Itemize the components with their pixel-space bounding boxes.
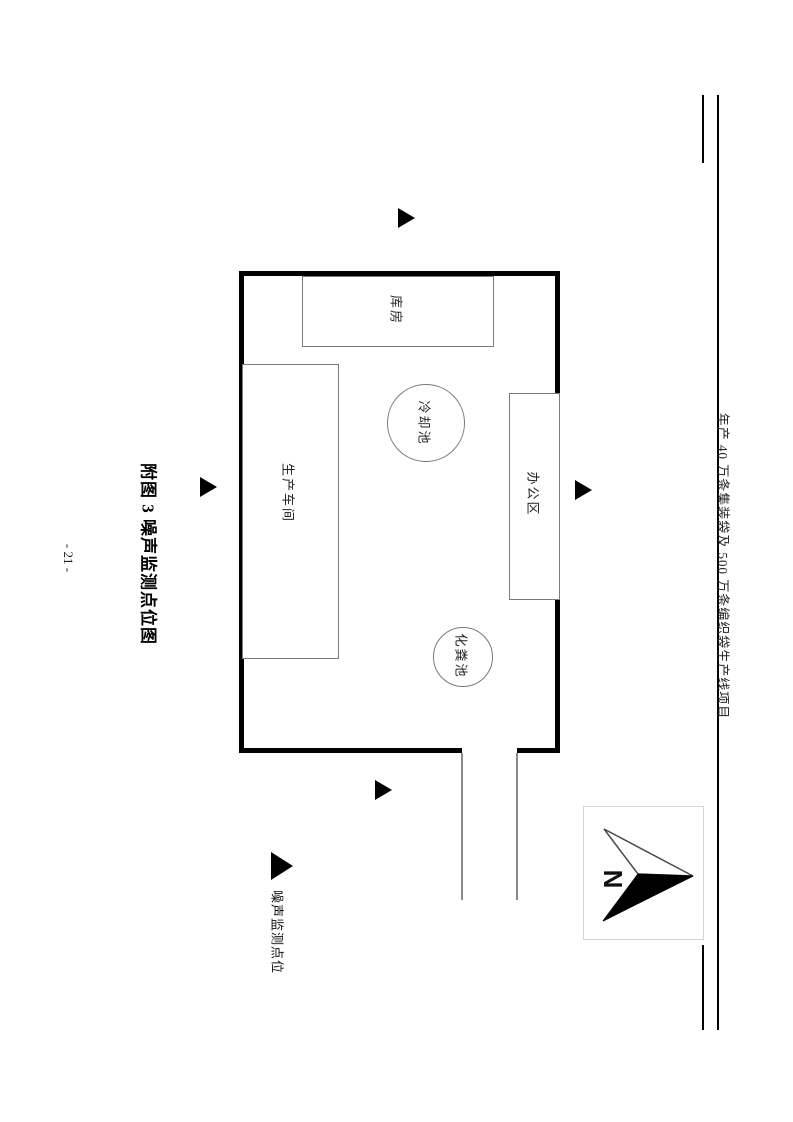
north-arrow-icon: N — [584, 807, 703, 939]
boundary-wall-bottom-left — [239, 748, 462, 753]
noise-monitoring-point-north — [398, 208, 415, 228]
legend-triangle-icon — [271, 852, 293, 880]
boundary-wall-bottom-right — [517, 748, 560, 753]
figure-title-text: 附图 3 噪声监测点位图 — [138, 463, 163, 645]
noise-monitoring-point-east — [575, 480, 592, 500]
document-page: 年产 40 万条集装袋及 500 万条编织袋生产线项目 附图 3 噪声监测点位图… — [0, 0, 793, 1122]
gate-road-line-left — [461, 753, 463, 900]
compass-north-label: N — [598, 870, 628, 889]
header-rule-short-top — [702, 95, 704, 163]
gate-road-line-right — [516, 753, 518, 900]
header-rule-short-bottom — [702, 945, 704, 1030]
compass: N — [583, 806, 704, 940]
noise-monitoring-point-south — [375, 780, 392, 800]
noise-monitoring-point-west — [200, 477, 217, 497]
page-number-text: - 21 - — [60, 544, 76, 572]
page-header-title-text: 年产 40 万条集装袋及 500 万条编织袋生产线项目 — [715, 413, 734, 720]
